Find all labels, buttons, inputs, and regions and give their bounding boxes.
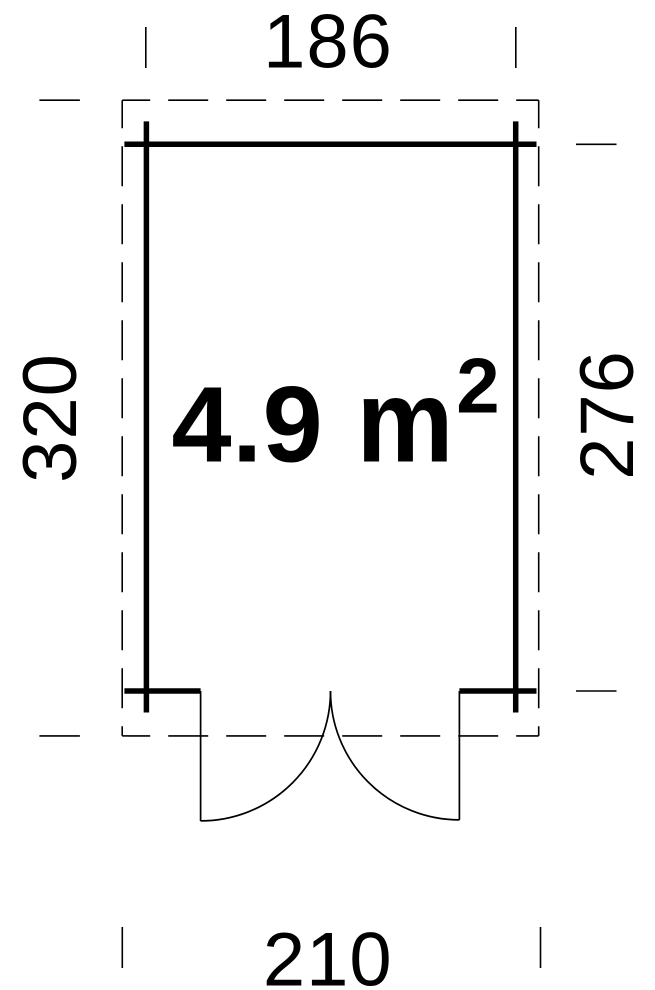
svg-text:m: m xyxy=(357,356,454,488)
svg-text:210: 210 xyxy=(263,917,393,990)
svg-text:2: 2 xyxy=(456,342,499,430)
svg-text:276: 276 xyxy=(565,350,650,480)
svg-text:320: 320 xyxy=(8,353,93,483)
svg-text:186: 186 xyxy=(263,0,393,84)
svg-text:4.9: 4.9 xyxy=(172,364,324,485)
